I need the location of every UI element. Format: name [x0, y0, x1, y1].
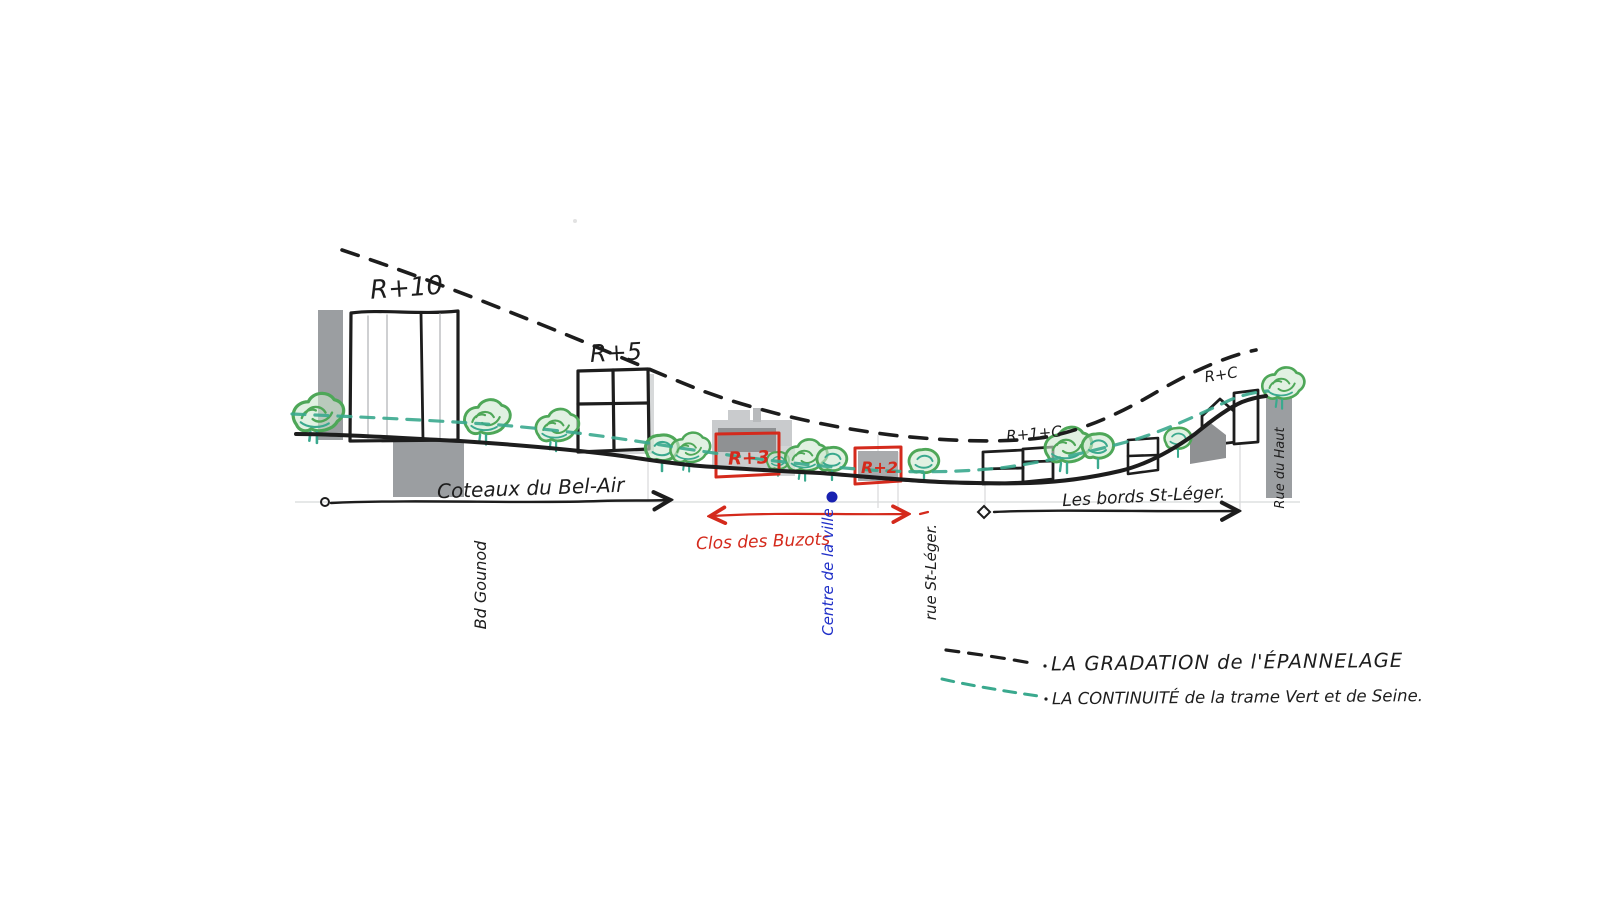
blue-point-marker	[827, 492, 838, 503]
label-rue-du-haut: Rue du Haut	[1273, 427, 1288, 509]
legend-green-dashed-swatch	[942, 679, 1038, 696]
legend-label-gradation: LA GRADATION de l'ÉPANNELAGE	[1051, 649, 1403, 676]
tree-icon	[464, 400, 510, 445]
buildings-r1c	[983, 447, 1053, 484]
label-rue-st-leger: rue St-Léger.	[922, 524, 940, 620]
legend: LA GRADATION de l'ÉPANNELAGE LA CONTINUI…	[942, 649, 1423, 708]
section-sketch-svg: R+10 R+5 R+3 R+2 R+1+C R+C Coteaux du Be…	[0, 0, 1612, 901]
legend-item-gradation: LA GRADATION de l'ÉPANNELAGE	[946, 649, 1403, 676]
legend-black-dashed-swatch	[946, 650, 1036, 664]
arrow-clos	[712, 514, 906, 516]
label-coteaux: Coteaux du Bel-Air	[437, 473, 627, 504]
legend-item-continuite: LA CONTINUITÉ de la trame Vert et de Sei…	[942, 679, 1423, 708]
label-r10: R+10	[369, 271, 444, 306]
tree-icon	[909, 449, 939, 482]
legend-label-continuite: LA CONTINUITÉ de la trame Vert et de Sei…	[1052, 686, 1423, 708]
label-rc: R+C	[1203, 363, 1239, 386]
building-r5	[578, 369, 649, 452]
sketch-page: R+10 R+5 R+3 R+2 R+1+C R+C Coteaux du Be…	[0, 0, 1612, 901]
label-centre-ville: Centre de la ville	[819, 508, 837, 636]
label-bords: Les bords St-Léger.	[1062, 483, 1226, 512]
label-clos: Clos des Buzots	[696, 530, 831, 555]
measure-arrows: Coteaux du Bel-Air Clos des Buzots Les b…	[321, 473, 1236, 555]
label-r5: R+5	[589, 337, 642, 368]
label-r2: R+2	[861, 458, 898, 477]
diamond-marker	[978, 506, 990, 518]
label-bd-gounod: Bd Gounod	[471, 540, 490, 629]
arrow-bords	[994, 511, 1236, 512]
label-r3: R+3	[728, 447, 770, 469]
